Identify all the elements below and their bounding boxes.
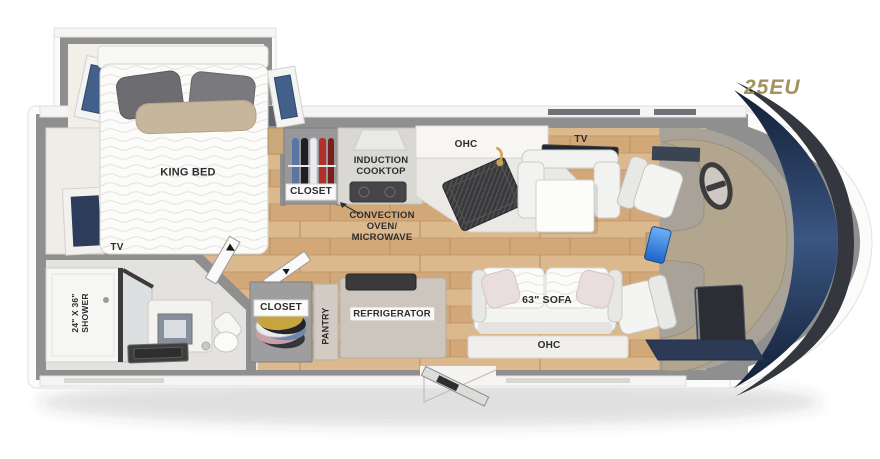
- shower-head-icon: [103, 297, 109, 303]
- king-bed: [98, 46, 268, 254]
- dinette-table: [536, 180, 594, 232]
- induction-cooktop-unit: [338, 128, 422, 204]
- window-cab-left: [652, 146, 700, 162]
- sofa: [472, 268, 622, 334]
- window-front-right: [646, 340, 764, 360]
- model-number: 25EU: [744, 76, 801, 100]
- range-hood: [354, 130, 406, 150]
- closet-bottom-unit: [250, 282, 312, 362]
- closet-label-plate: [286, 184, 336, 200]
- cab-tv-panel: [695, 285, 746, 345]
- floorplan-canvas: 25EU KING BED CLOSET INDUCTION COOKTOP O…: [0, 0, 880, 459]
- overhead-cabinet-sofa: [468, 336, 628, 358]
- closet-label-plate: [254, 300, 308, 316]
- bedroom: [46, 46, 305, 255]
- closet-top-unit: [284, 128, 338, 204]
- bathroom-sink-counter: [128, 343, 189, 363]
- shower-glass-frame: [118, 268, 123, 362]
- floorplan-drawing: [0, 0, 880, 459]
- pantry-unit: [314, 284, 338, 360]
- bolster-pillow: [135, 100, 256, 134]
- cooktop-surface: [350, 182, 406, 202]
- bottom-trim: [40, 376, 686, 386]
- refrigerator-unit: [340, 274, 446, 358]
